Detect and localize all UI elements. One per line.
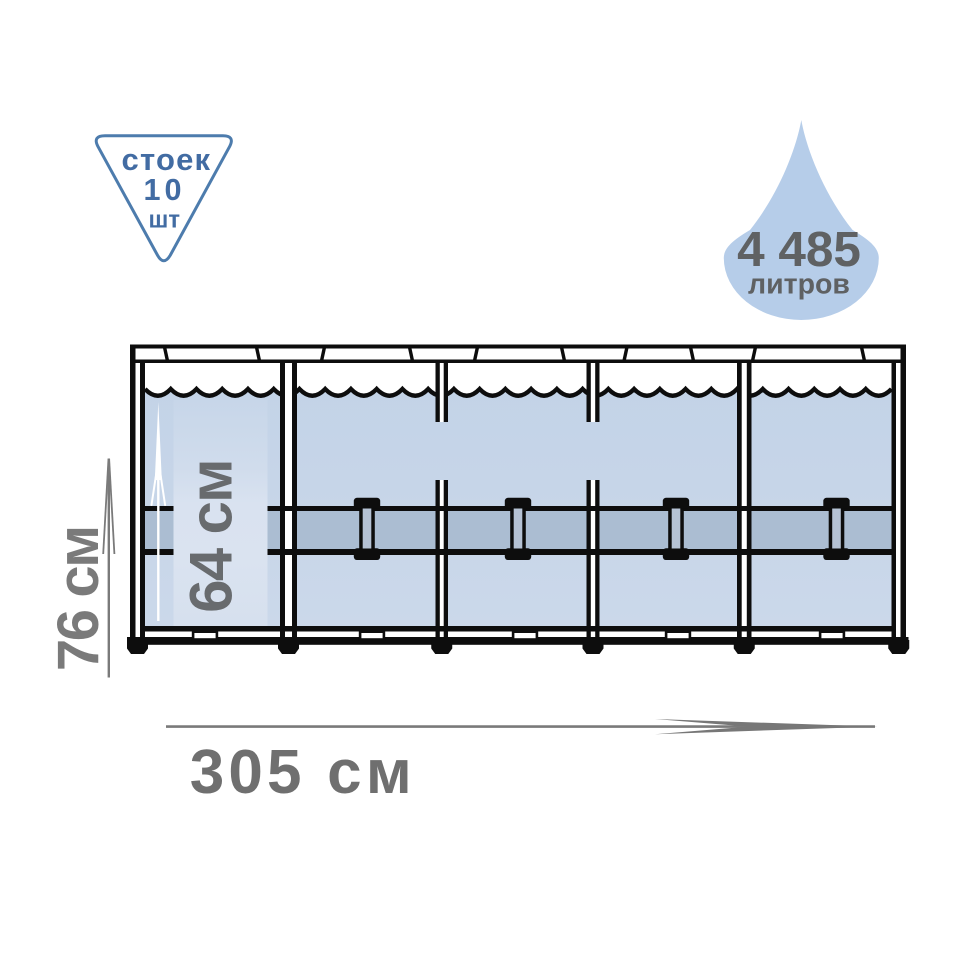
svg-text:64 см: 64 см: [178, 460, 245, 613]
svg-text:305 см: 305 см: [190, 738, 416, 807]
svg-text:10: 10: [143, 173, 185, 207]
svg-text:литров: литров: [748, 268, 850, 300]
svg-text:76 см: 76 см: [46, 527, 111, 671]
svg-text:шт: шт: [149, 207, 181, 234]
